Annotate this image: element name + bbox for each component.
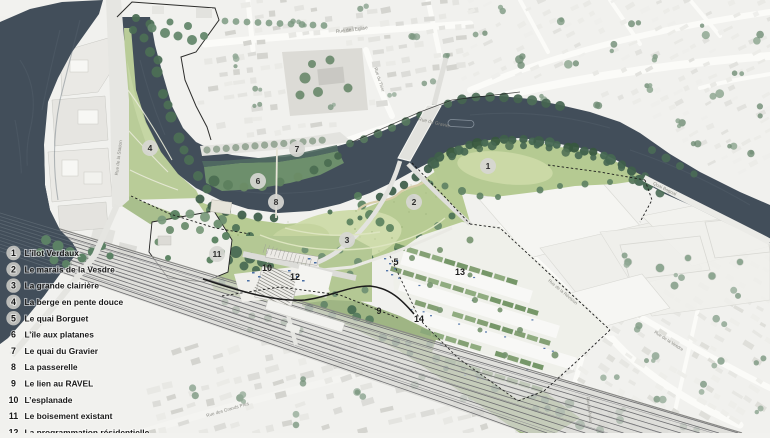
- svg-text:10: 10: [9, 395, 19, 405]
- svg-text:6: 6: [256, 176, 261, 186]
- svg-text:6: 6: [11, 330, 16, 340]
- svg-text:L’îlot Verdaux: L’îlot Verdaux: [25, 248, 80, 258]
- svg-text:La grande clairière: La grande clairière: [25, 281, 100, 291]
- svg-text:3: 3: [11, 281, 16, 291]
- svg-text:La passerelle: La passerelle: [25, 362, 78, 372]
- svg-text:Le marais de la Vesdre: Le marais de la Vesdre: [25, 264, 116, 274]
- svg-text:10: 10: [262, 263, 272, 273]
- svg-text:13: 13: [455, 267, 465, 277]
- svg-text:11: 11: [213, 249, 222, 259]
- svg-text:Le quai Borguet: Le quai Borguet: [25, 313, 89, 323]
- svg-text:Le lien au RAVEL: Le lien au RAVEL: [25, 379, 94, 389]
- svg-text:11: 11: [9, 411, 18, 421]
- svg-text:9: 9: [376, 306, 381, 316]
- svg-text:1: 1: [11, 248, 16, 258]
- svg-text:4: 4: [148, 143, 153, 153]
- svg-text:5: 5: [393, 257, 398, 267]
- svg-text:Le quai du Gravier: Le quai du Gravier: [25, 346, 99, 356]
- svg-text:1: 1: [486, 161, 491, 171]
- svg-text:La programmation résidentielle: La programmation résidentielle: [25, 427, 150, 433]
- svg-text:L’esplanade: L’esplanade: [25, 395, 73, 405]
- svg-text:8: 8: [11, 362, 16, 372]
- svg-text:2: 2: [11, 264, 16, 274]
- svg-text:3: 3: [345, 235, 350, 245]
- svg-text:4: 4: [11, 297, 16, 307]
- svg-text:12: 12: [9, 427, 19, 433]
- svg-text:2: 2: [412, 197, 417, 207]
- svg-text:La berge en pente douce: La berge en pente douce: [25, 297, 124, 307]
- svg-text:Le boisement existant: Le boisement existant: [25, 411, 113, 421]
- svg-text:9: 9: [11, 379, 16, 389]
- svg-text:5: 5: [11, 313, 16, 323]
- svg-text:12: 12: [290, 272, 300, 282]
- svg-text:8: 8: [274, 197, 279, 207]
- svg-text:14: 14: [414, 314, 424, 324]
- svg-text:L’île aux platanes: L’île aux platanes: [25, 330, 95, 340]
- svg-text:7: 7: [295, 144, 300, 154]
- svg-text:7: 7: [11, 346, 16, 356]
